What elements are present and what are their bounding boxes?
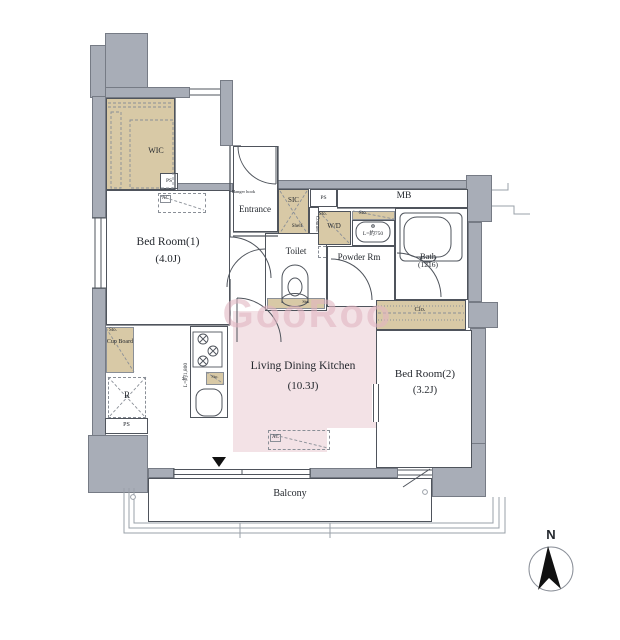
entrance-label: Entrance bbox=[230, 204, 280, 215]
entry-marker-triangle bbox=[212, 457, 226, 467]
bedroom2-label: Bed Room(2) (3.2J) bbox=[378, 368, 472, 397]
room-bedroom2 bbox=[376, 330, 472, 468]
bedroom2-name: Bed Room(2) bbox=[378, 368, 472, 381]
wall-balcony-seg2 bbox=[310, 468, 398, 478]
cupboard-label: Cup Board bbox=[106, 339, 134, 346]
toilet-door-arc bbox=[227, 249, 265, 287]
ldk-size: (10.3J) bbox=[236, 380, 370, 393]
wd-sto-label: Sto. bbox=[319, 212, 335, 218]
compass-needle bbox=[538, 546, 561, 590]
bedroom1-size: (4.0J) bbox=[108, 253, 228, 266]
kitchen-length-label: L=約1,800 bbox=[183, 343, 193, 407]
shelf-label: Shelf bbox=[287, 224, 307, 230]
wall-right-lower bbox=[470, 328, 486, 445]
bath-size: (1216) bbox=[404, 261, 452, 270]
bedroom1-label: Bed Room(1) (4.0J) bbox=[108, 236, 228, 266]
compass-north-label: N bbox=[543, 527, 559, 542]
ps-1-label: PS bbox=[166, 178, 172, 184]
wall-right-step bbox=[468, 302, 498, 328]
ac-box-2: AC bbox=[268, 430, 330, 450]
fridge-label: R bbox=[108, 390, 146, 401]
cupboard-sto-label: Sto. bbox=[107, 328, 133, 334]
bedroom2-size: (3.2J) bbox=[378, 385, 472, 397]
ps-3-label: PS bbox=[123, 422, 130, 429]
ps-3-label-box: PS bbox=[105, 418, 148, 434]
wall-wic-top bbox=[105, 87, 190, 98]
wall-balcony-seg1 bbox=[148, 468, 174, 478]
compass bbox=[529, 546, 573, 591]
balcony-label: Balcony bbox=[254, 488, 326, 500]
wall-left-lower bbox=[92, 288, 106, 438]
wd-label: W/D bbox=[318, 222, 350, 230]
wall-right-upper bbox=[468, 222, 482, 302]
wic-label: WIC bbox=[138, 146, 174, 155]
ps-box-1: PS bbox=[160, 173, 178, 189]
wall-top-left-block-ext bbox=[90, 45, 106, 98]
bedroom1-name: Bed Room(1) bbox=[108, 236, 228, 250]
wall-entry-vertical bbox=[220, 80, 233, 146]
ldk-label: Living Dining Kitchen (10.3J) bbox=[236, 360, 370, 393]
ldk-name: Living Dining Kitchen bbox=[236, 360, 370, 374]
wall-top-right-horizontal bbox=[276, 180, 468, 189]
sto-2-label: Sto. bbox=[353, 211, 373, 217]
ac-box-1: AC bbox=[158, 193, 206, 213]
sic-label: SIC bbox=[281, 196, 306, 204]
ac-1-label: AC bbox=[160, 195, 171, 203]
powder-label: Powder Rm bbox=[332, 252, 386, 263]
ac-2-label: AC bbox=[270, 434, 281, 442]
toilet-label: Toilet bbox=[269, 246, 323, 257]
mb-label: MB bbox=[390, 191, 418, 202]
toilet-sto-label: Sto. bbox=[297, 299, 315, 304]
closet-2-label: Clo. bbox=[398, 306, 442, 314]
bath-label: Bath (1216) bbox=[404, 251, 452, 270]
floor-plan: PS AC AC bbox=[0, 0, 620, 640]
kitchen-sto-label: Sto. bbox=[206, 374, 224, 379]
wall-bottom-left-block bbox=[88, 435, 148, 493]
wall-left-upper bbox=[92, 96, 106, 218]
ps-2-label: PS bbox=[320, 195, 326, 201]
ps-2-label-box: PS bbox=[310, 189, 337, 207]
hanger-hook-label: Hanger hook bbox=[231, 190, 256, 195]
vanity-length-label: L=約750 bbox=[350, 231, 396, 237]
wall-top-right-pillar bbox=[466, 175, 492, 222]
cupboard bbox=[106, 327, 134, 373]
balcony bbox=[148, 478, 432, 522]
